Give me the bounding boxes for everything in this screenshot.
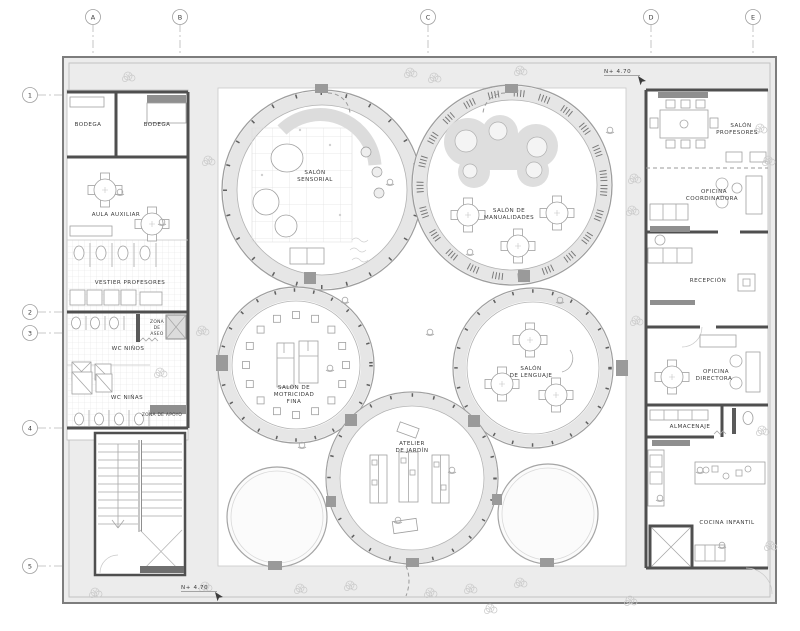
label-coordinadora-2: COORDINADORA bbox=[686, 196, 738, 202]
grid-row-markers: 1 2 3 4 5 bbox=[23, 88, 65, 574]
label-bodega-1: BODEGA bbox=[75, 122, 102, 128]
room-salon-de-manualidades bbox=[412, 85, 612, 285]
label-zona-aseo-2: DE bbox=[154, 325, 161, 331]
level-label-top: N+ 4.70 bbox=[604, 69, 631, 75]
label-almacenaje: ALMACENAJE bbox=[670, 424, 711, 430]
label-directora-1: OFICINA bbox=[703, 369, 729, 375]
label-zona-aseo-3: ASEO bbox=[150, 331, 163, 337]
cabinet bbox=[658, 92, 708, 98]
patio-circle bbox=[227, 467, 327, 567]
label-motricidad-2: MOTRICIDAD bbox=[274, 392, 315, 398]
label-salon-sensorial-2: SENSORIAL bbox=[297, 177, 333, 183]
grid-label-1: 1 bbox=[28, 92, 32, 100]
label-vestier-profesores: VESTIER PROFESORES bbox=[95, 280, 166, 286]
label-motricidad-3: FINA bbox=[287, 399, 302, 405]
label-directora-2: DIRECTORA bbox=[696, 376, 733, 382]
label-lenguaje-1: SALÓN bbox=[520, 365, 541, 372]
grid-label-4: 4 bbox=[28, 425, 32, 433]
shelf-cabinet bbox=[147, 95, 186, 103]
label-salon-profesores-1: SALÓN bbox=[730, 122, 751, 129]
floor-plan-canvas: A B C D E 1 2 3 4 5 bbox=[0, 0, 800, 631]
label-recepcion: RECEPCIÓN bbox=[690, 277, 726, 284]
label-lenguaje-2: DE LENGUAJE bbox=[510, 373, 553, 379]
grid-label-d: D bbox=[648, 14, 653, 22]
grid-label-b: B bbox=[178, 14, 182, 22]
label-wc-ninas: WC NIÑAS bbox=[111, 394, 143, 401]
patio-circle bbox=[498, 464, 598, 564]
label-aula-auxiliar: AULA AUXILIAR bbox=[92, 212, 141, 218]
label-bodega-2: BODEGA bbox=[144, 122, 171, 128]
elevator bbox=[650, 526, 692, 568]
grid-label-3: 3 bbox=[28, 330, 32, 338]
work-table bbox=[277, 343, 294, 387]
label-cocina-infantil: COCINA INFANTIL bbox=[699, 520, 755, 526]
grid-label-a: A bbox=[91, 14, 96, 22]
grid-label-c: C bbox=[426, 14, 431, 22]
grid-column-markers: A B C D E bbox=[86, 10, 761, 58]
label-atelier-1: ATELIER bbox=[399, 441, 425, 447]
label-salon-sensorial-1: SALÓN bbox=[304, 169, 325, 176]
label-motricidad-1: SALÓN DE bbox=[278, 384, 310, 391]
label-wc-ninos: WC NIÑOS bbox=[112, 345, 145, 352]
staircase bbox=[95, 433, 185, 575]
grid-label-e: E bbox=[751, 14, 755, 22]
room-salon-sensorial bbox=[222, 90, 422, 290]
grid-label-2: 2 bbox=[28, 309, 32, 317]
work-table bbox=[299, 341, 318, 383]
label-salon-profesores-2: PROFESORES bbox=[716, 130, 758, 136]
floor-plan-drawing: A B C D E 1 2 3 4 5 bbox=[0, 0, 800, 631]
label-atelier-2: DE JARDÍN bbox=[395, 447, 428, 454]
grid-label-5: 5 bbox=[28, 563, 32, 571]
label-manualidades-1: SALÓN DE bbox=[493, 207, 525, 214]
label-zona-apoyo: ZONA DE APOYO bbox=[142, 412, 183, 418]
level-label-bottom: N+ 4.70 bbox=[181, 585, 208, 591]
label-zona-aseo-1: ZONA bbox=[150, 319, 164, 325]
label-manualidades-2: MANUALIDADES bbox=[484, 215, 534, 221]
label-coordinadora-1: OFICINA bbox=[701, 189, 727, 195]
